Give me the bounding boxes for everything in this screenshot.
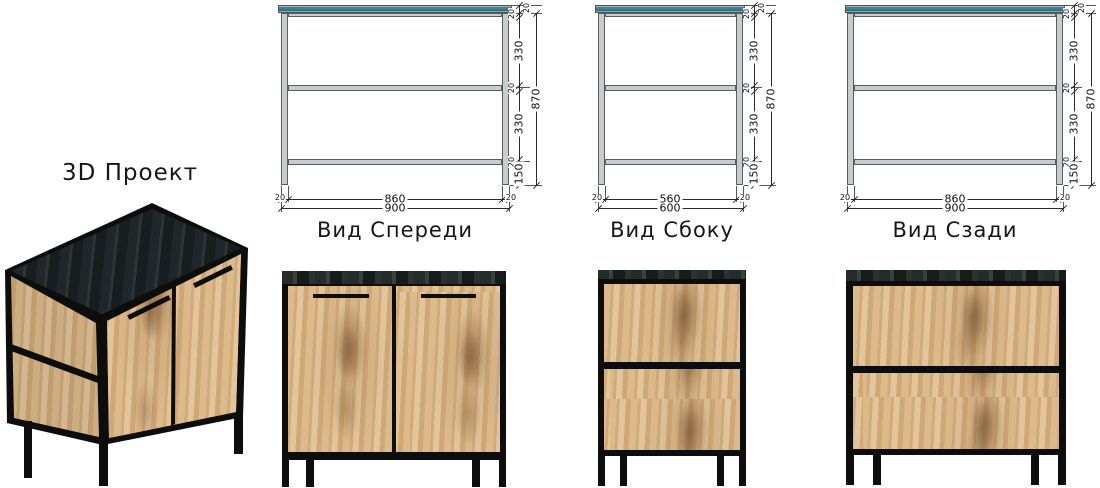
dim-upper-330: 330	[749, 39, 760, 64]
side-view-label: Вид Сбоку	[610, 218, 734, 242]
bottom-rail-profile	[605, 159, 736, 165]
furniture-drawing-sheet: 3D Проект 860	[0, 0, 1100, 488]
front-view-drawing: 860 20 20 900 20 20 330 20 330 20 150 87…	[278, 2, 548, 250]
bottom-rail-profile	[854, 159, 1056, 165]
mid-rail-profile	[854, 85, 1056, 91]
left-leg-profile	[598, 13, 605, 185]
cabinet-leg	[24, 421, 32, 478]
dim-total-870: 870	[766, 87, 777, 112]
countertop-profile	[845, 5, 1065, 13]
mid-rail-profile	[605, 85, 736, 91]
dim-legs-150: 150	[1069, 162, 1080, 187]
cabinet-leg	[499, 460, 506, 487]
left-leg-profile	[847, 13, 854, 185]
cabinet-leg	[598, 456, 605, 486]
dim-countertop: 20	[1078, 2, 1086, 14]
cabinet-leg	[306, 460, 314, 487]
cabinet-leg	[282, 460, 289, 487]
right-door	[396, 286, 500, 452]
upper-side-panel	[604, 284, 740, 362]
dim-top-rail: 20	[743, 8, 751, 20]
dim-mid-rail: 20	[1063, 82, 1071, 94]
front-view-label: Вид Спереди	[317, 218, 473, 242]
left-door	[288, 286, 392, 452]
dim-left-end: 20	[591, 194, 603, 202]
back-render	[846, 268, 1066, 487]
countertop-edge	[598, 270, 746, 279]
dim-outer-width: 900	[943, 203, 968, 214]
mid-rail-profile	[288, 85, 502, 91]
dim-mid-rail: 20	[743, 82, 751, 94]
cabinet-leg	[739, 456, 746, 486]
dim-outer-width: 900	[383, 203, 408, 214]
cabinet-leg	[1031, 455, 1039, 485]
dim-top-rail: 20	[508, 8, 516, 20]
countertop-edge	[282, 271, 506, 284]
lower-side-panel	[604, 369, 740, 450]
side-render	[598, 270, 746, 486]
3d-cabinet-render	[0, 195, 260, 488]
cabinet-leg	[99, 443, 108, 486]
dim-lower-330: 330	[514, 112, 525, 137]
back-view-drawing: 860 20 20 900 20 20 330 20 330 20 150 87…	[836, 2, 1100, 250]
front-render	[282, 268, 506, 487]
dim-left-end: 20	[274, 194, 286, 202]
cabinet-leg	[846, 455, 854, 485]
dim-mid-rail: 20	[508, 82, 516, 94]
dim-top-rail: 20	[1063, 8, 1071, 20]
cabinet-leg	[717, 456, 724, 486]
countertop-profile	[278, 5, 512, 13]
right-door-handle	[421, 294, 476, 298]
dim-upper-330: 330	[1069, 39, 1080, 64]
top-rail-profile	[605, 13, 736, 17]
dim-lower-330: 330	[1069, 112, 1080, 137]
cabinet-leg	[472, 460, 480, 487]
top-rail-profile	[288, 13, 502, 17]
dim-left-end: 20	[839, 194, 851, 202]
dim-countertop: 20	[758, 2, 766, 14]
dim-right-end: 20	[739, 194, 751, 202]
dim-total-870: 870	[1086, 87, 1097, 112]
countertop-profile	[595, 5, 745, 13]
cabinet-leg	[1058, 455, 1066, 485]
bottom-rail-profile	[288, 159, 502, 165]
left-leg-profile	[281, 13, 288, 185]
dim-total-870: 870	[531, 87, 542, 112]
3d-view-title: 3D Проект	[55, 160, 205, 186]
left-door-handle	[313, 294, 369, 298]
dim-lower-330: 330	[749, 112, 760, 137]
cabinet-leg	[873, 455, 881, 485]
top-rail-profile	[854, 13, 1056, 17]
back-view-label: Вид Сзади	[892, 218, 1017, 242]
dim-legs-150: 150	[749, 162, 760, 187]
dim-right-end: 20	[505, 194, 517, 202]
dim-countertop: 20	[523, 2, 531, 14]
lower-back-panel	[853, 373, 1059, 449]
dim-upper-330: 330	[514, 39, 525, 64]
dim-right-end: 20	[1059, 194, 1071, 202]
cabinet-leg	[234, 415, 243, 454]
upper-back-panel	[853, 286, 1059, 366]
dim-legs-150: 150	[514, 162, 525, 187]
cabinet-leg	[620, 456, 627, 486]
side-view-drawing: 560 20 20 600 20 20 330 20 330 20 150 87…	[595, 2, 807, 250]
countertop-edge	[846, 270, 1066, 281]
dim-outer-width: 600	[658, 203, 683, 214]
